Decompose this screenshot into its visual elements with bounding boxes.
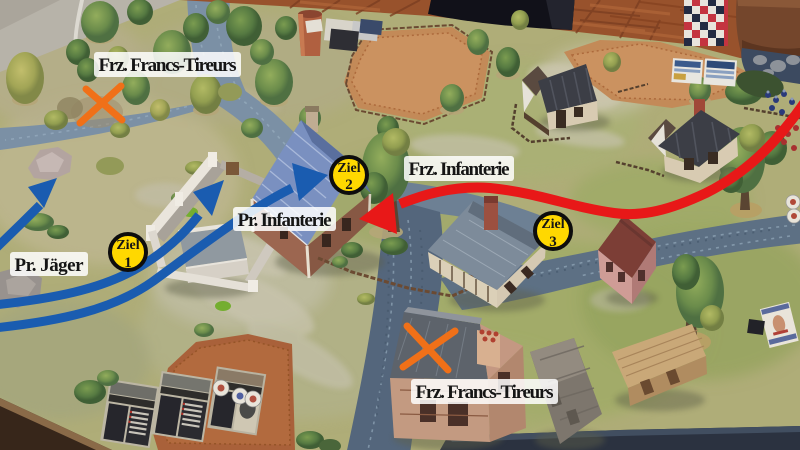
svg-text:Ziel: Ziel <box>337 161 360 176</box>
svg-text:Frz. Francs-Tireurs: Frz. Francs-Tireurs <box>416 382 554 403</box>
svg-text:Pr. Infanterie: Pr. Infanterie <box>238 210 332 231</box>
svg-text:1: 1 <box>124 255 132 271</box>
svg-text:2: 2 <box>345 177 353 193</box>
svg-text:Ziel: Ziel <box>116 238 139 253</box>
svg-text:Ziel: Ziel <box>541 217 564 232</box>
svg-text:Pr. Jäger: Pr. Jäger <box>15 255 85 276</box>
svg-text:Frz. Infanterie: Frz. Infanterie <box>409 159 510 180</box>
svg-text:3: 3 <box>549 234 557 250</box>
svg-text:Frz. Francs-Tireurs: Frz. Francs-Tireurs <box>99 55 237 76</box>
